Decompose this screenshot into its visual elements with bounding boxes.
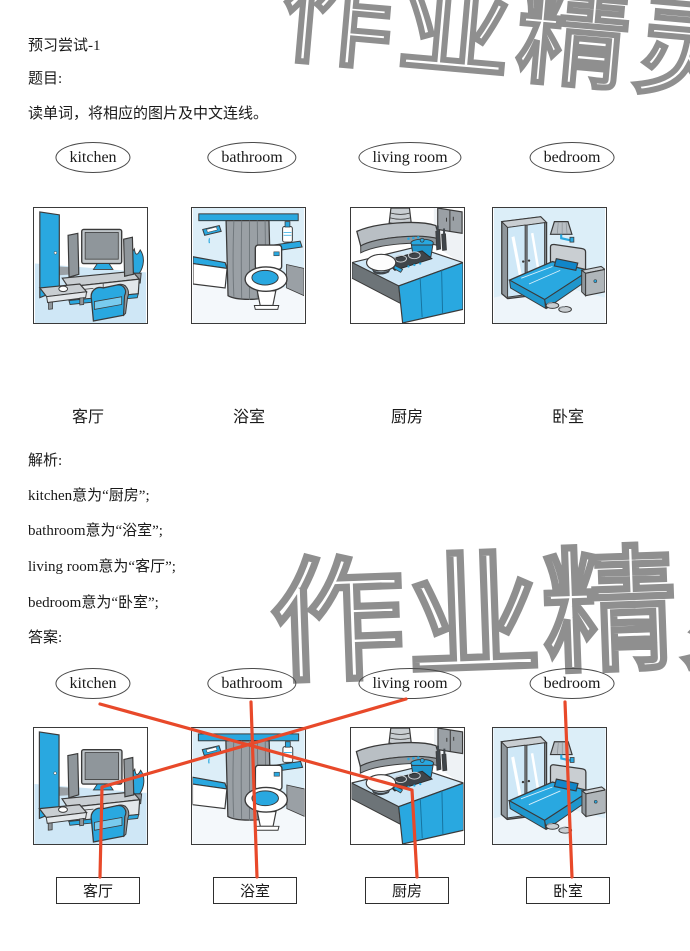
room-label-yushi: 浴室 xyxy=(233,403,265,427)
word-oval-bathroom: bathroom xyxy=(207,142,296,173)
watermark-top: 作业精灵 xyxy=(276,0,690,125)
answer-picture-bedroom xyxy=(492,727,607,845)
picture-bathroom xyxy=(191,207,306,324)
page-title: 预习尝试-1 xyxy=(28,34,101,55)
room-label-keting: 客厅 xyxy=(72,403,104,427)
word-oval-kitchen: kitchen xyxy=(55,142,130,173)
answer-box-yushi: 浴室 xyxy=(213,877,297,904)
answer-label: 答案: xyxy=(28,626,62,647)
watermark-middle: 作业精灵 xyxy=(267,497,690,710)
answer-word-oval-bedroom: bedroom xyxy=(530,668,615,699)
analysis-line: bathroom意为“浴室”; xyxy=(28,519,163,540)
room-label-woshi: 卧室 xyxy=(552,403,584,427)
answer-picture-bathroom xyxy=(191,727,306,845)
answer-picture-living-room xyxy=(33,727,148,845)
answer-word-oval-kitchen: kitchen xyxy=(55,668,130,699)
question-text: 读单词，将相应的图片及中文连线。 xyxy=(28,102,268,123)
analysis-line: kitchen意为“厨房”; xyxy=(28,484,150,505)
answer-box-chufang: 厨房 xyxy=(365,877,449,904)
picture-living-room xyxy=(33,207,148,324)
answer-picture-kitchen xyxy=(350,727,465,845)
question-label: 题目: xyxy=(28,67,62,88)
analysis-line: living room意为“客厅”; xyxy=(28,555,176,576)
analysis-line: bedroom意为“卧室”; xyxy=(28,591,159,612)
answer-word-oval-bathroom: bathroom xyxy=(207,668,296,699)
worksheet-page: 作业精灵 作业精灵 预习尝试-1 题目: 读单词，将相应的图片及中文连线。 ki… xyxy=(0,0,690,951)
word-oval-bedroom: bedroom xyxy=(530,142,615,173)
answer-box-keting: 客厅 xyxy=(56,877,140,904)
picture-bedroom xyxy=(492,207,607,324)
analysis-label: 解析: xyxy=(28,449,62,470)
picture-kitchen xyxy=(350,207,465,324)
word-oval-living-room: living room xyxy=(358,142,461,173)
answer-word-oval-living-room: living room xyxy=(358,668,461,699)
room-label-chufang: 厨房 xyxy=(391,403,423,427)
answer-box-woshi: 卧室 xyxy=(526,877,610,904)
